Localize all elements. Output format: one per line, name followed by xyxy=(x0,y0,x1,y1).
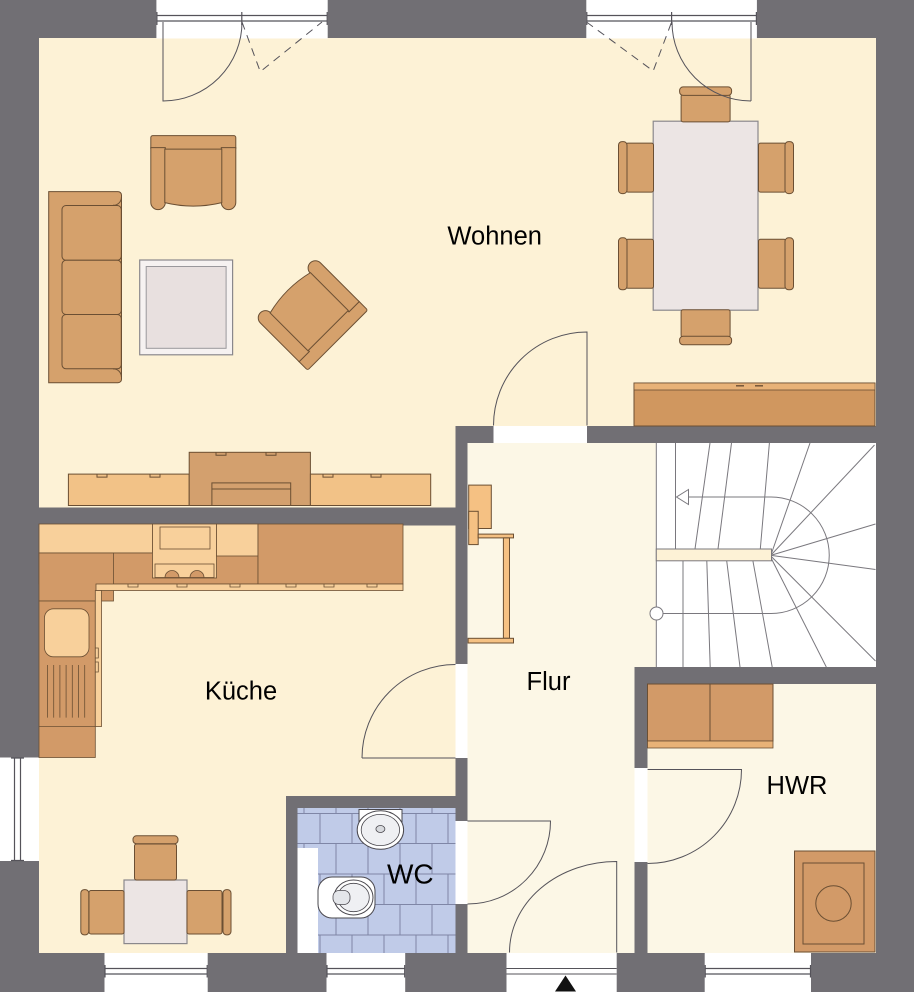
svg-text:WC: WC xyxy=(387,859,434,890)
svg-text:Wohnen: Wohnen xyxy=(447,223,542,251)
svg-text:Küche: Küche xyxy=(205,678,277,706)
svg-text:Flur: Flur xyxy=(527,668,571,696)
svg-text:HWR: HWR xyxy=(767,772,828,800)
